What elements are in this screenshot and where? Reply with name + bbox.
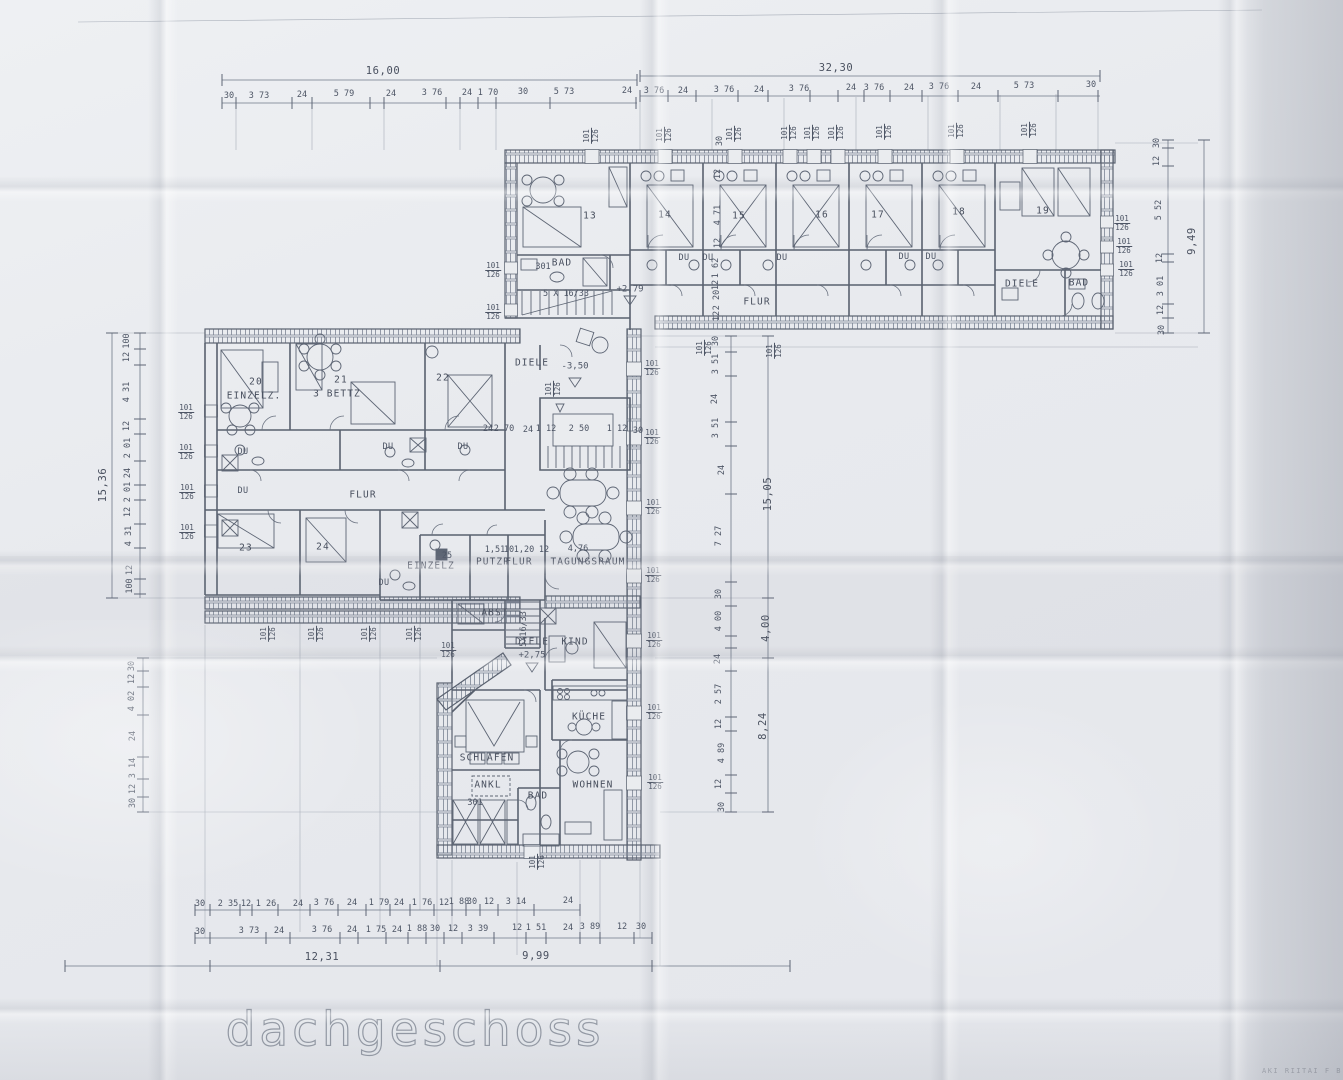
sanitary-fixtures <box>235 170 1104 846</box>
floorplan-drawing <box>0 0 1343 1080</box>
stairs <box>506 291 620 644</box>
paper-background: 16,00303 73245 79243 76241 70305 732432,… <box>0 0 1343 1080</box>
kitchen-fixtures <box>553 686 627 739</box>
interior-walls <box>205 163 1101 845</box>
photographed-blueprint: { "page_title": "dachgeschoss", "title":… <box>0 0 1343 1080</box>
window-symbols <box>205 150 1114 859</box>
cabinets <box>222 167 627 844</box>
level-markers <box>526 296 636 672</box>
furniture <box>218 167 1104 846</box>
outer-walls <box>205 150 1115 860</box>
illegible-corner-stamp: AKI RIITAI F B <box>1262 1067 1342 1075</box>
floor-title: dachgeschoss <box>226 1003 605 1058</box>
beds <box>218 168 1090 752</box>
